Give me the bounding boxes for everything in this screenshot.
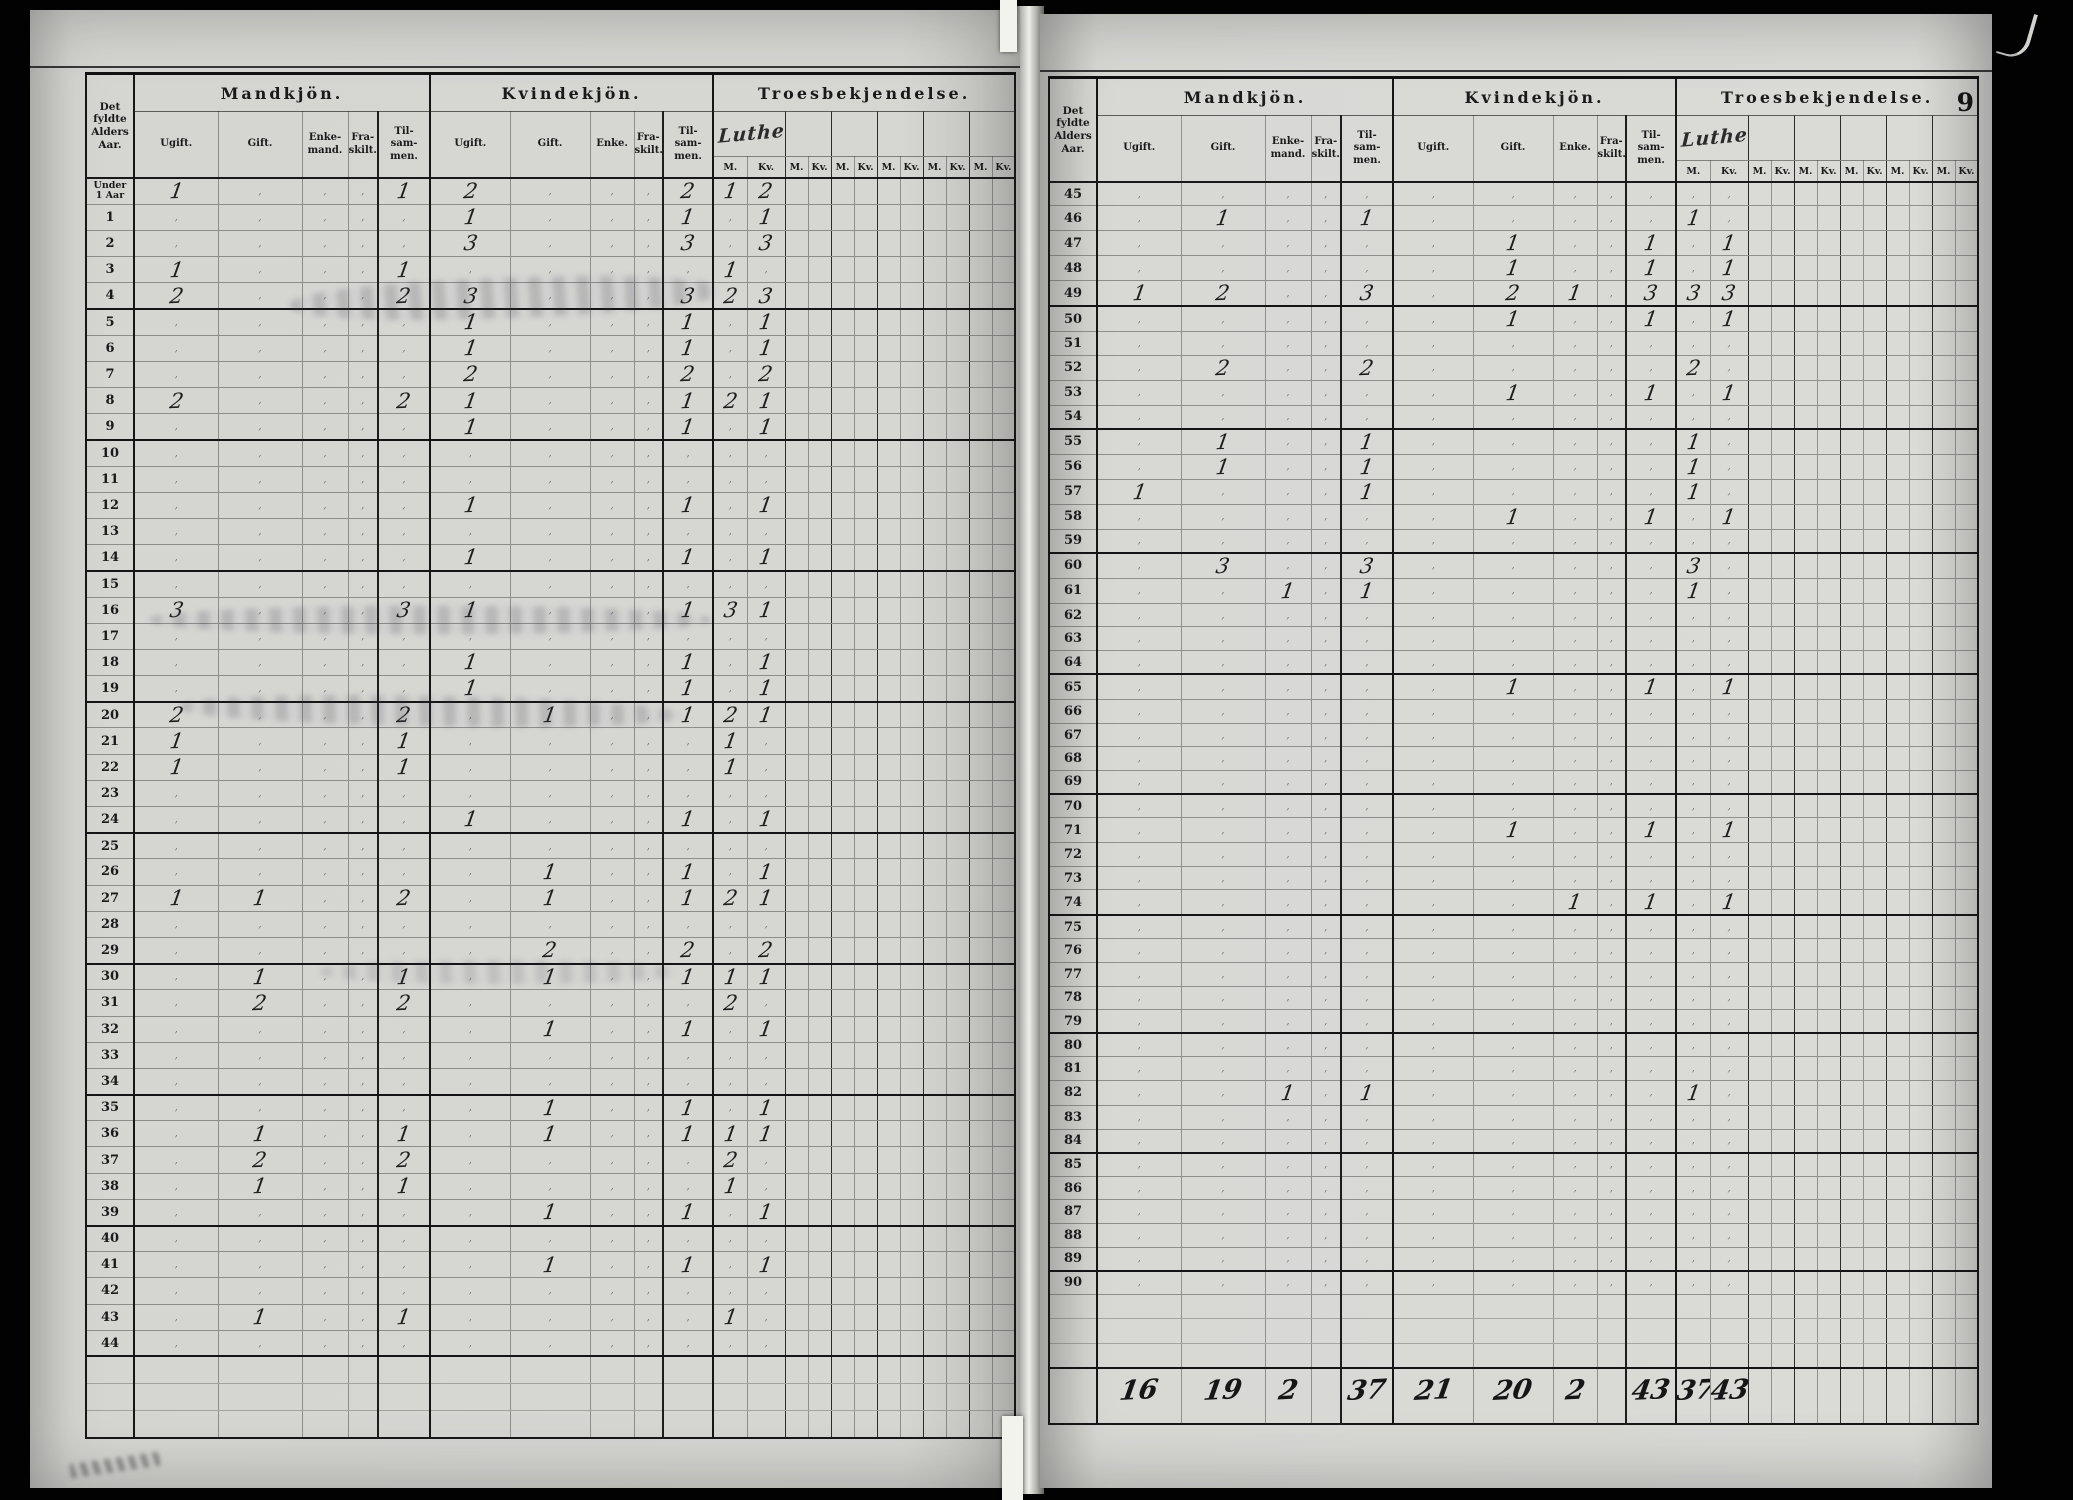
value-cell: , — [713, 911, 747, 937]
empty-religion-cell — [854, 1016, 877, 1042]
ditto-mark: , — [1610, 1040, 1613, 1051]
value-cell: , — [1097, 529, 1181, 553]
empty-religion-cell — [1748, 843, 1771, 867]
empty-religion-cell — [1909, 578, 1932, 603]
filler-row — [1049, 1343, 1978, 1368]
mkv-header: Kv. — [1909, 161, 1932, 183]
empty-religion-cell — [1886, 504, 1909, 529]
ditto-mark: , — [1221, 610, 1224, 621]
value-cell: , — [1181, 963, 1265, 987]
value-cell: , — [1097, 770, 1181, 794]
empty-religion-cell — [808, 649, 831, 675]
ditto-mark: , — [1221, 992, 1224, 1003]
ditto-mark: , — [402, 1050, 405, 1061]
handwritten-value: 1 — [1685, 480, 1702, 504]
empty-cell — [854, 1411, 877, 1438]
religion-empty-header — [877, 112, 923, 157]
empty-religion-cell — [1886, 818, 1909, 843]
age-cell: 18 — [86, 649, 134, 675]
table-row: 6,,,,,1,,,1,1 — [86, 335, 1015, 361]
ditto-mark: , — [647, 448, 650, 459]
value-cell: , — [348, 780, 378, 806]
ditto-mark: , — [1324, 585, 1327, 596]
value-cell: 1 — [747, 414, 785, 440]
ditto-mark: , — [1286, 897, 1289, 908]
value-cell: 1 — [713, 754, 747, 780]
value-cell: , — [1676, 1010, 1710, 1034]
mkv-header: Kv. — [1863, 161, 1886, 183]
table-row: 13,,,,,,,,,,,, — [86, 518, 1015, 544]
ditto-mark: , — [323, 841, 326, 852]
value-cell: 3 — [430, 230, 510, 256]
empty-religion-cell — [900, 335, 923, 361]
value-cell: , — [1311, 723, 1341, 747]
empty-religion-cell — [1909, 627, 1932, 651]
empty-religion-cell — [900, 1147, 923, 1173]
value-cell: , — [1553, 674, 1597, 700]
empty-religion-cell — [1840, 1105, 1863, 1129]
age-cell — [1049, 1294, 1097, 1319]
ditto-mark: , — [1573, 213, 1576, 224]
age-cell: 21 — [86, 728, 134, 754]
empty-religion-cell — [1955, 454, 1978, 479]
handwritten-value: 1 — [679, 965, 696, 989]
ditto-mark: , — [1221, 1112, 1224, 1123]
ditto-mark: , — [548, 264, 551, 275]
value-cell: 2 — [747, 937, 785, 963]
value-cell: , — [1341, 231, 1393, 256]
age-cell: 24 — [86, 807, 134, 833]
ditto-mark: , — [764, 788, 767, 799]
value-cell: , — [590, 1173, 634, 1199]
ditto-mark: , — [1432, 945, 1435, 956]
empty-religion-cell — [831, 1121, 854, 1147]
empty-religion-cell — [1932, 939, 1955, 963]
age-cell — [1049, 1368, 1097, 1424]
empty-religion-cell — [785, 518, 808, 544]
ditto-mark: , — [323, 526, 326, 537]
value-cell: , — [1626, 578, 1676, 603]
ditto-mark: , — [361, 866, 364, 877]
empty-religion-cell — [785, 937, 808, 963]
ditto-mark: , — [764, 1050, 767, 1061]
ditto-mark: , — [402, 448, 405, 459]
ditto-mark: , — [1511, 1040, 1514, 1051]
ditto-mark: , — [1573, 411, 1576, 422]
empty-religion-cell — [946, 309, 969, 335]
ditto-mark: , — [610, 552, 613, 563]
ditto-mark: , — [258, 1259, 261, 1270]
table-row: 24,,,,,1,,,1,1 — [86, 807, 1015, 833]
ditto-mark: , — [258, 1207, 261, 1218]
ditto-mark: , — [1286, 873, 1289, 884]
ditto-mark: , — [1432, 1183, 1435, 1194]
empty-religion-cell — [1886, 986, 1909, 1010]
empty-religion-cell — [1748, 794, 1771, 818]
empty-religion-cell — [946, 492, 969, 518]
empty-religion-cell — [1748, 1010, 1771, 1034]
table-row: 26,,,,,,1,,1,1 — [86, 859, 1015, 885]
empty-religion-cell — [1863, 1010, 1886, 1034]
value-cell: , — [1097, 963, 1181, 987]
age-cell: 70 — [1049, 794, 1097, 818]
value-cell: , — [590, 780, 634, 806]
value-cell: 1 — [747, 204, 785, 230]
empty-religion-cell — [1748, 1033, 1771, 1057]
value-cell: , — [1341, 627, 1393, 651]
table-row: 47,,,,,,1,,1,1 — [1049, 231, 1978, 256]
empty-religion-cell — [1794, 380, 1817, 405]
ditto-mark: , — [1324, 1277, 1327, 1288]
value-cell: , — [378, 859, 430, 885]
handwriting-smudge — [69, 1452, 160, 1478]
empty-cell — [785, 1384, 808, 1411]
ditto-mark: , — [1286, 486, 1289, 497]
value-cell: , — [1553, 1176, 1597, 1200]
ditto-mark: , — [1286, 314, 1289, 325]
empty-religion-cell — [1932, 1010, 1955, 1034]
age-cell: 73 — [1049, 866, 1097, 890]
value-cell: , — [1473, 1033, 1553, 1057]
ditto-mark: , — [175, 1207, 178, 1218]
value-cell: , — [302, 492, 348, 518]
value-cell: , — [348, 1095, 378, 1121]
ditto-mark: , — [1727, 486, 1730, 497]
ditto-mark: , — [1649, 1040, 1652, 1051]
ditto-mark: , — [1511, 1063, 1514, 1074]
empty-religion-cell — [1771, 1200, 1794, 1224]
value-cell: , — [1341, 890, 1393, 916]
value-cell: , — [378, 518, 430, 544]
value-cell: 1 — [430, 649, 510, 675]
empty-religion-cell — [1748, 1271, 1771, 1295]
empty-religion-cell — [1955, 674, 1978, 700]
ditto-mark: , — [258, 762, 261, 773]
value-cell: , — [1626, 700, 1676, 724]
empty-religion-cell — [946, 780, 969, 806]
value-cell: , — [378, 1252, 430, 1278]
value-cell: , — [1393, 380, 1473, 405]
empty-cell — [747, 1411, 785, 1438]
ditto-mark: , — [361, 448, 364, 459]
ditto-mark: , — [1221, 1016, 1224, 1027]
ditto-mark: , — [323, 893, 326, 904]
table-row: 50,,,,,,1,,1,1 — [1049, 306, 1978, 332]
value-cell: 3 — [1626, 281, 1676, 307]
empty-religion-cell — [946, 1068, 969, 1094]
age-cell: 58 — [1049, 504, 1097, 529]
male-subcolumn-header: Gift. — [218, 112, 302, 179]
ditto-mark: , — [1649, 1063, 1652, 1074]
value-cell: , — [1097, 1200, 1181, 1224]
value-cell: 1 — [1553, 281, 1597, 307]
ditto-mark: , — [548, 343, 551, 354]
value-cell: , — [348, 388, 378, 414]
age-cell: 84 — [1049, 1129, 1097, 1153]
handwritten-value: 1 — [1358, 455, 1375, 479]
empty-religion-cell — [1909, 1105, 1932, 1129]
total-cell: 19 — [1181, 1368, 1265, 1424]
ditto-mark: , — [361, 1207, 364, 1218]
value-cell: , — [634, 937, 663, 963]
handwritten-total: 21 — [1412, 1374, 1455, 1407]
empty-religion-cell — [969, 728, 992, 754]
ditto-mark: , — [1511, 657, 1514, 668]
value-cell: , — [1393, 603, 1473, 627]
empty-religion-cell — [1748, 281, 1771, 307]
ditto-mark: , — [361, 1076, 364, 1087]
empty-religion-cell — [1909, 256, 1932, 281]
female-subcolumn-header: Ugift. — [1393, 116, 1473, 183]
ditto-mark: , — [258, 1024, 261, 1035]
value-cell: , — [1473, 700, 1553, 724]
ditto-mark: , — [1324, 1159, 1327, 1170]
table-row: 88,,,,,,,,,,,, — [1049, 1223, 1978, 1247]
value-cell: , — [1341, 818, 1393, 843]
ditto-mark: , — [1138, 338, 1141, 349]
ditto-mark: , — [1649, 560, 1652, 571]
value-cell: , — [1393, 794, 1473, 818]
value-cell: , — [510, 545, 590, 571]
ditto-mark: , — [1432, 486, 1435, 497]
age-cell — [1049, 1343, 1097, 1368]
ditto-mark: , — [323, 500, 326, 511]
empty-religion-cell — [785, 1330, 808, 1356]
ditto-mark: , — [686, 997, 689, 1008]
value-cell: , — [1341, 723, 1393, 747]
value-cell: , — [1553, 1080, 1597, 1105]
empty-religion-cell — [854, 388, 877, 414]
value-cell: 1 — [1710, 504, 1748, 529]
empty-religion-cell — [1840, 986, 1863, 1010]
value-cell: , — [1341, 1153, 1393, 1177]
value-cell: 2 — [134, 283, 218, 309]
value-cell: , — [1626, 723, 1676, 747]
value-cell: 2 — [134, 388, 218, 414]
value-cell: , — [1553, 578, 1597, 603]
value-cell: 1 — [1710, 256, 1748, 281]
empty-religion-cell — [1955, 182, 1978, 206]
value-cell: , — [1341, 1033, 1393, 1057]
ditto-mark: , — [175, 500, 178, 511]
ditto-mark: , — [647, 343, 650, 354]
empty-religion-cell — [785, 754, 808, 780]
ledger-page-left: Det fyldte Alders Aar.Mandkjön.Kvindekjö… — [30, 10, 1020, 1488]
empty-religion-cell — [1886, 770, 1909, 794]
empty-religion-cell — [877, 1068, 900, 1094]
value-cell: 1 — [218, 964, 302, 990]
empty-religion-cell — [808, 1304, 831, 1330]
age-cell: 40 — [86, 1226, 134, 1252]
ditto-mark: , — [1511, 873, 1514, 884]
ditto-mark: , — [610, 238, 613, 249]
empty-religion-cell — [969, 414, 992, 440]
value-cell: , — [430, 440, 510, 466]
value-cell: , — [218, 492, 302, 518]
ditto-mark: , — [258, 552, 261, 563]
ditto-mark: , — [1649, 922, 1652, 933]
empty-religion-cell — [992, 466, 1015, 492]
value-cell: 1 — [510, 1016, 590, 1042]
ditto-mark: , — [1138, 263, 1141, 274]
value-cell: , — [1473, 479, 1553, 504]
value-cell: , — [1473, 1247, 1553, 1271]
value-cell: , — [218, 649, 302, 675]
value-cell: , — [1393, 843, 1473, 867]
table-row: 77,,,,,,,,,,,, — [1049, 963, 1978, 987]
value-cell: , — [218, 440, 302, 466]
empty-religion-cell — [992, 676, 1015, 702]
empty-religion-cell — [1748, 479, 1771, 504]
ditto-mark: , — [175, 866, 178, 877]
value-cell: , — [1473, 986, 1553, 1010]
ditto-mark: , — [469, 1207, 472, 1218]
value-cell: 1 — [134, 178, 218, 204]
empty-cell — [510, 1384, 590, 1411]
value-cell: , — [378, 649, 430, 675]
value-cell: , — [1597, 231, 1626, 256]
ditto-mark: , — [548, 1312, 551, 1323]
empty-religion-cell — [946, 833, 969, 859]
ditto-mark: , — [1511, 560, 1514, 571]
empty-religion-cell — [1955, 306, 1978, 332]
value-cell: , — [1626, 1105, 1676, 1129]
ditto-mark: , — [1727, 849, 1730, 860]
empty-religion-cell — [900, 1199, 923, 1225]
ditto-mark: , — [1221, 873, 1224, 884]
value-cell: 1 — [1341, 578, 1393, 603]
ditto-mark: , — [361, 264, 364, 275]
empty-religion-cell — [992, 440, 1015, 466]
ditto-mark: , — [1365, 1063, 1368, 1074]
empty-religion-cell — [946, 335, 969, 361]
table-row: 14,,,,,1,,,1,1 — [86, 545, 1015, 571]
value-cell: , — [1597, 939, 1626, 963]
empty-religion-cell — [854, 807, 877, 833]
handwritten-value: 1 — [168, 755, 185, 779]
value-cell: , — [1597, 818, 1626, 843]
handwritten-value: 1 — [1642, 818, 1659, 842]
value-cell: , — [1676, 1271, 1710, 1295]
empty-cell — [634, 1356, 663, 1383]
empty-religion-cell — [831, 257, 854, 283]
value-cell: 1 — [747, 1252, 785, 1278]
value-cell: , — [1265, 1129, 1311, 1153]
empty-religion-cell — [992, 885, 1015, 911]
ditto-mark: , — [1138, 535, 1141, 546]
value-cell: , — [218, 859, 302, 885]
ditto-mark: , — [258, 579, 261, 590]
empty-religion-cell — [854, 518, 877, 544]
empty-cell — [1748, 1294, 1771, 1319]
value-cell: , — [302, 361, 348, 387]
value-cell: 1 — [1341, 1080, 1393, 1105]
empty-cell — [1794, 1319, 1817, 1344]
empty-religion-cell — [785, 361, 808, 387]
ditto-mark: , — [1286, 753, 1289, 764]
value-cell: , — [634, 1330, 663, 1356]
ditto-mark: , — [1573, 362, 1576, 373]
ditto-mark: , — [1511, 849, 1514, 860]
value-cell: , — [1311, 866, 1341, 890]
ditto-mark: , — [1432, 189, 1435, 200]
ditto-mark: , — [1365, 610, 1368, 621]
table-row: 72,,,,,,,,,,,, — [1049, 843, 1978, 867]
ditto-mark: , — [1610, 1159, 1613, 1170]
empty-religion-cell — [785, 440, 808, 466]
empty-religion-cell — [854, 1068, 877, 1094]
ditto-mark: , — [764, 1285, 767, 1296]
ditto-mark: , — [1727, 969, 1730, 980]
ditto-mark: , — [1573, 633, 1576, 644]
ditto-mark: , — [175, 238, 178, 249]
table-row: 41,,,,,,1,,1,1 — [86, 1252, 1015, 1278]
empty-religion-cell — [946, 1199, 969, 1225]
ditto-mark: , — [1692, 1206, 1695, 1217]
ditto-mark: , — [610, 1312, 613, 1323]
empty-religion-cell — [923, 1330, 946, 1356]
value-cell: , — [302, 1042, 348, 1068]
ditto-mark: , — [1365, 1277, 1368, 1288]
ditto-mark: , — [469, 919, 472, 930]
value-cell: , — [634, 414, 663, 440]
empty-religion-cell — [1840, 603, 1863, 627]
ditto-mark: , — [548, 657, 551, 668]
table-row: 66,,,,,,,,,,,, — [1049, 700, 1978, 724]
empty-religion-cell — [1817, 963, 1840, 987]
handwritten-value: 1 — [757, 886, 774, 910]
value-cell: 1 — [134, 257, 218, 283]
value-cell: , — [348, 518, 378, 544]
handwritten-value: 2 — [1504, 281, 1521, 305]
value-cell: 2 — [378, 1147, 430, 1173]
ditto-mark: , — [1286, 1230, 1289, 1241]
mkv-header: Kv. — [854, 157, 877, 179]
ditto-mark: , — [1511, 922, 1514, 933]
empty-religion-cell — [1863, 890, 1886, 916]
table-row: 7,,,,,2,,,2,2 — [86, 361, 1015, 387]
empty-religion-cell — [1863, 1033, 1886, 1057]
ditto-mark: , — [647, 736, 650, 747]
empty-religion-cell — [1817, 405, 1840, 429]
value-cell: 2 — [663, 937, 713, 963]
value-cell: , — [218, 518, 302, 544]
empty-religion-cell — [877, 728, 900, 754]
ditto-mark: , — [175, 1312, 178, 1323]
handwritten-value: 1 — [757, 336, 774, 360]
value-cell: , — [1181, 1033, 1265, 1057]
value-cell: , — [1265, 700, 1311, 724]
value-cell: , — [1265, 770, 1311, 794]
empty-religion-cell — [1794, 794, 1817, 818]
empty-religion-cell — [900, 361, 923, 387]
ditto-mark: , — [1692, 922, 1695, 933]
value-cell: , — [134, 964, 218, 990]
ditto-mark: , — [1221, 969, 1224, 980]
age-cell: 33 — [86, 1042, 134, 1068]
empty-religion-cell — [808, 414, 831, 440]
empty-cell — [969, 1411, 992, 1438]
empty-religion-cell — [1748, 700, 1771, 724]
empty-religion-cell — [969, 623, 992, 649]
value-cell: , — [1626, 1153, 1676, 1177]
ditto-mark: , — [647, 238, 650, 249]
mkv-header: Kv. — [747, 157, 785, 179]
ditto-mark: , — [1610, 753, 1613, 764]
ditto-mark: , — [1511, 992, 1514, 1003]
ditto-mark: , — [323, 1259, 326, 1270]
table-row: 84,,,,,,,,,,,, — [1049, 1129, 1978, 1153]
